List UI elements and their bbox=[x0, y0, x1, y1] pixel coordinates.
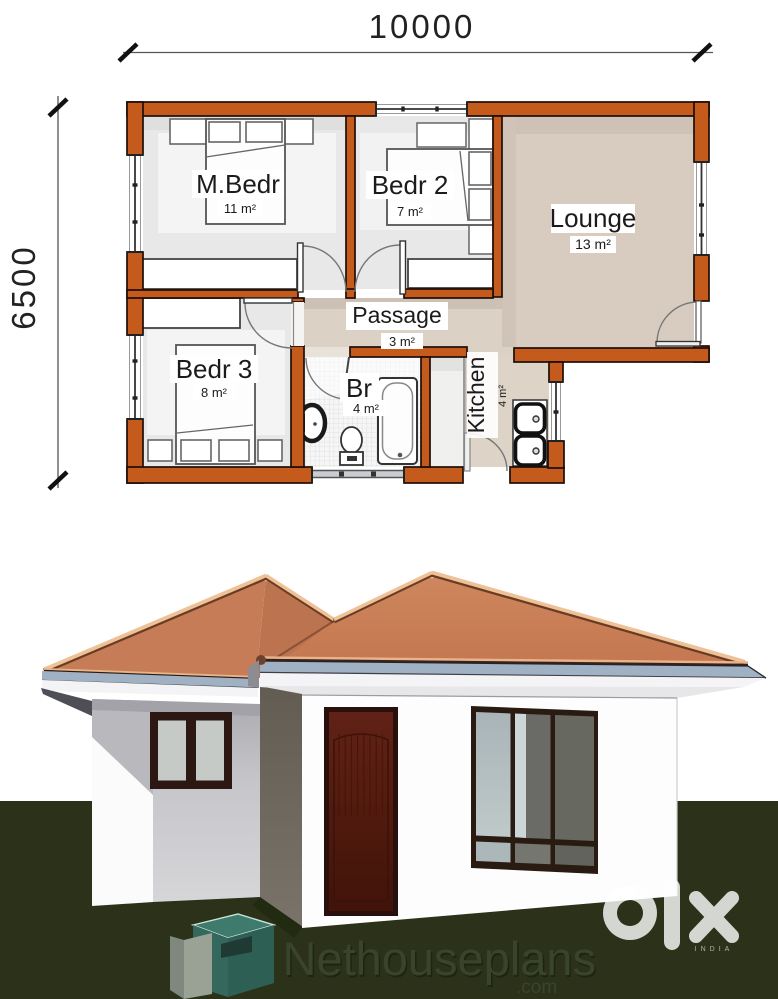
svg-text:Passage: Passage bbox=[352, 302, 442, 328]
svg-text:10000: 10000 bbox=[369, 8, 476, 45]
svg-text:6500: 6500 bbox=[5, 244, 42, 329]
svg-text:M.Bedr: M.Bedr bbox=[196, 169, 280, 199]
svg-text:.com: .com bbox=[516, 977, 557, 998]
svg-text:7 m²: 7 m² bbox=[397, 204, 424, 219]
svg-text:13 m²: 13 m² bbox=[575, 236, 611, 252]
svg-text:Bedr 2: Bedr 2 bbox=[372, 170, 449, 200]
svg-text:4 m²: 4 m² bbox=[497, 385, 509, 407]
svg-text:4 m²: 4 m² bbox=[353, 401, 380, 416]
svg-text:INDIA: INDIA bbox=[695, 946, 734, 953]
svg-text:Bedr 3: Bedr 3 bbox=[176, 354, 253, 384]
svg-text:Lounge: Lounge bbox=[550, 203, 637, 233]
svg-text:3 m²: 3 m² bbox=[389, 334, 416, 349]
svg-text:Kitchen: Kitchen bbox=[463, 357, 489, 434]
svg-text:Br: Br bbox=[346, 373, 372, 403]
svg-text:8 m²: 8 m² bbox=[201, 385, 228, 400]
svg-text:11 m²: 11 m² bbox=[224, 201, 257, 216]
